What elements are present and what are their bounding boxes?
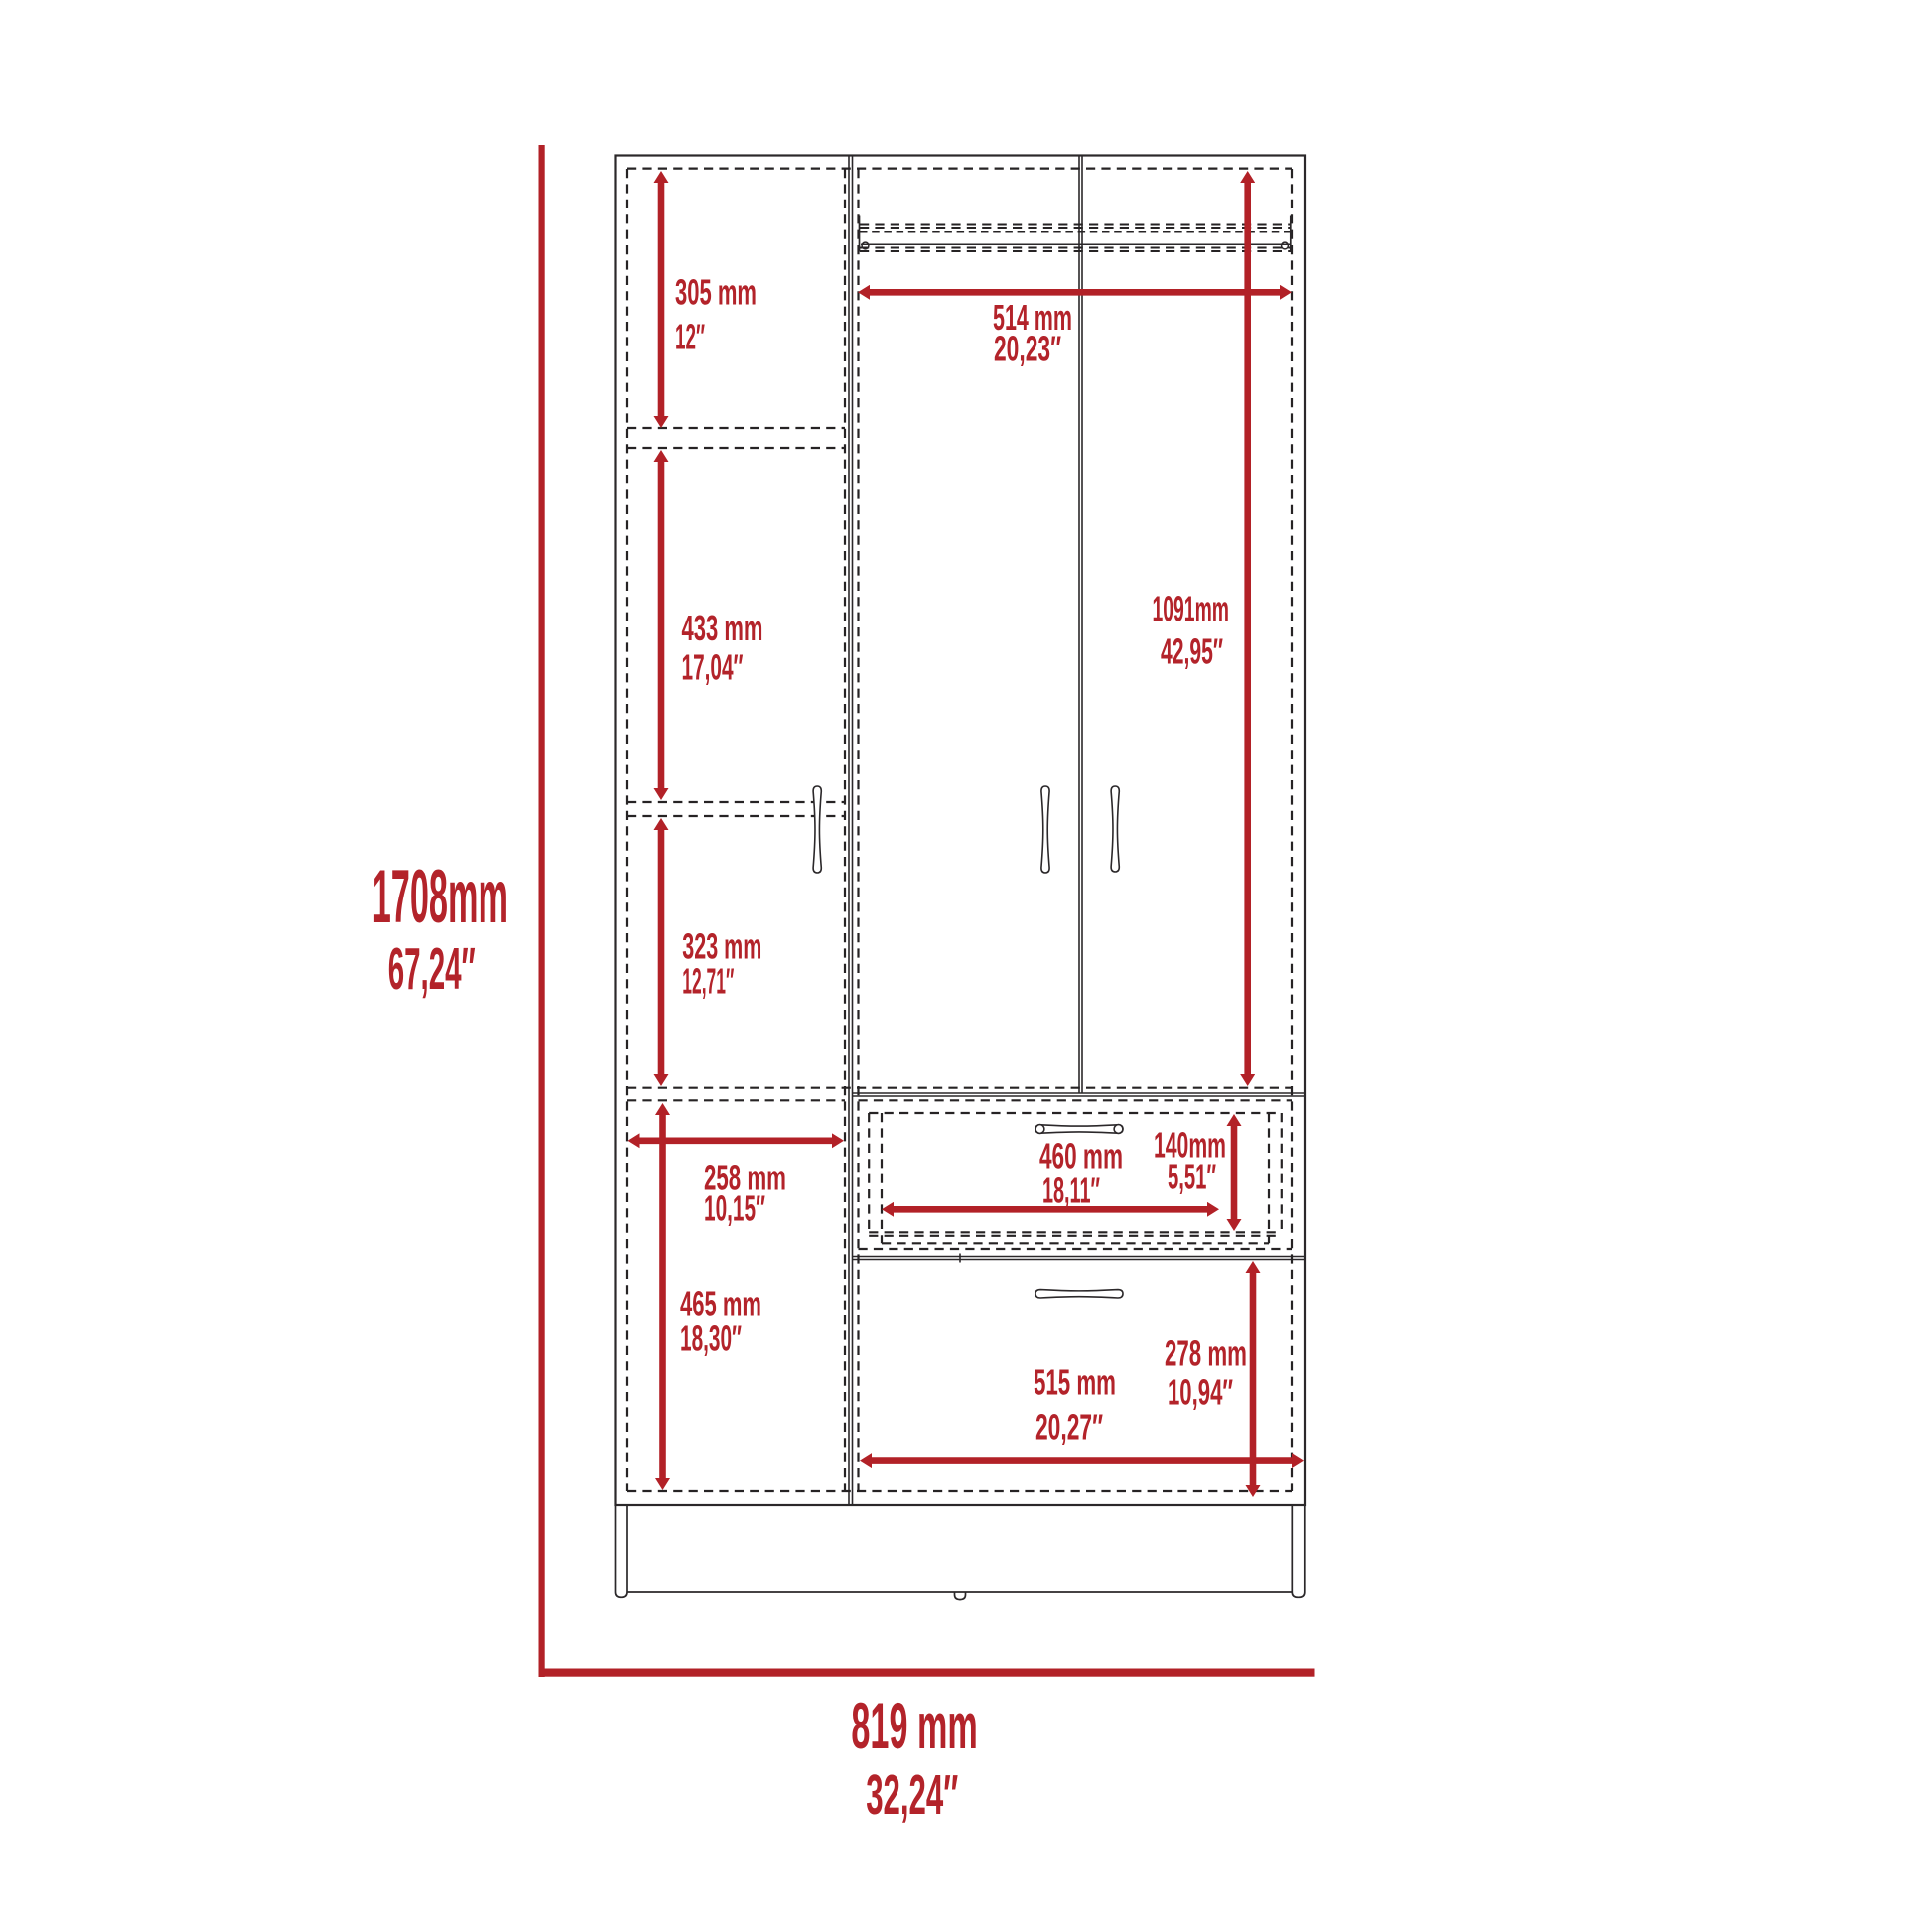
- svg-text:1708mm: 1708mm: [372, 855, 508, 939]
- svg-text:1091mm: 1091mm: [1153, 588, 1230, 628]
- svg-text:10,94″: 10,94″: [1168, 1372, 1233, 1413]
- svg-text:305 mm: 305 mm: [675, 272, 757, 313]
- svg-text:42,95″: 42,95″: [1161, 630, 1223, 671]
- svg-text:20,27″: 20,27″: [1035, 1407, 1103, 1448]
- svg-text:819 mm: 819 mm: [851, 1690, 977, 1762]
- svg-text:12,71″: 12,71″: [682, 961, 734, 1002]
- svg-text:12″: 12″: [675, 317, 705, 357]
- svg-text:18,11″: 18,11″: [1042, 1171, 1100, 1211]
- svg-text:5,51″: 5,51″: [1168, 1157, 1216, 1197]
- svg-text:20,23″: 20,23″: [994, 329, 1061, 369]
- svg-text:18,30″: 18,30″: [680, 1318, 742, 1359]
- svg-text:433 mm: 433 mm: [682, 608, 763, 648]
- svg-text:515 mm: 515 mm: [1034, 1362, 1116, 1403]
- svg-text:67,24″: 67,24″: [388, 936, 476, 1002]
- svg-text:278 mm: 278 mm: [1165, 1333, 1247, 1374]
- svg-text:32,24″: 32,24″: [866, 1763, 958, 1827]
- svg-text:10,15″: 10,15″: [704, 1188, 765, 1229]
- svg-text:17,04″: 17,04″: [682, 647, 744, 688]
